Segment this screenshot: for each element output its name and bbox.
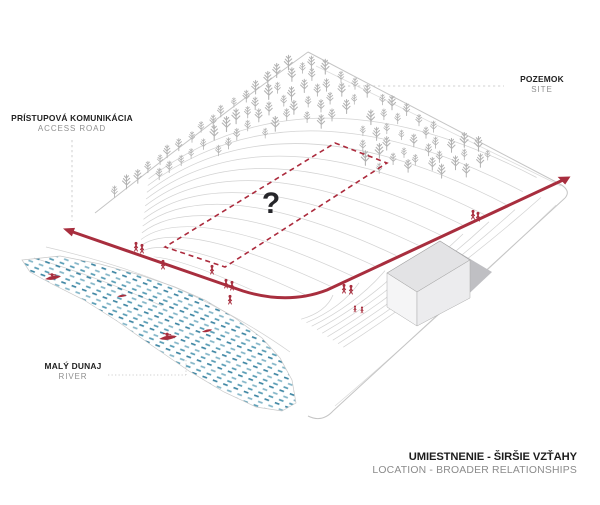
river-label-sk: MALÝ DUNAJ: [0, 361, 153, 372]
diagram-title-sk: UMIESTNENIE - ŠIRŠIE VZŤAHY: [372, 451, 577, 465]
site-label-sk: POZEMOK: [462, 74, 600, 85]
site-label: POZEMOK SITE: [462, 74, 600, 95]
question-mark: ?: [262, 187, 280, 220]
access-road-label-sk: PRÍSTUPOVÁ KOMUNIKÁCIA: [0, 113, 148, 124]
forest-trees: [111, 55, 490, 197]
access-road-label: PRÍSTUPOVÁ KOMUNIKÁCIA ACCESS ROAD: [0, 113, 148, 134]
road-arrow-left-icon: [63, 228, 75, 237]
diagram-title-en: LOCATION - BROADER RELATIONSHIPS: [372, 465, 577, 478]
site-diagram: ? PRÍSTUPOVÁ KOMUNIKÁCIA ACCESS ROAD POZ…: [0, 0, 600, 505]
diagram-title: UMIESTNENIE - ŠIRŠIE VZŤAHY LOCATION - B…: [372, 451, 577, 477]
river-label: MALÝ DUNAJ RIVER: [0, 361, 153, 382]
river-water: [22, 256, 296, 411]
river-label-en: RIVER: [0, 372, 153, 382]
access-road-label-en: ACCESS ROAD: [0, 124, 148, 134]
site-label-en: SITE: [462, 85, 600, 95]
